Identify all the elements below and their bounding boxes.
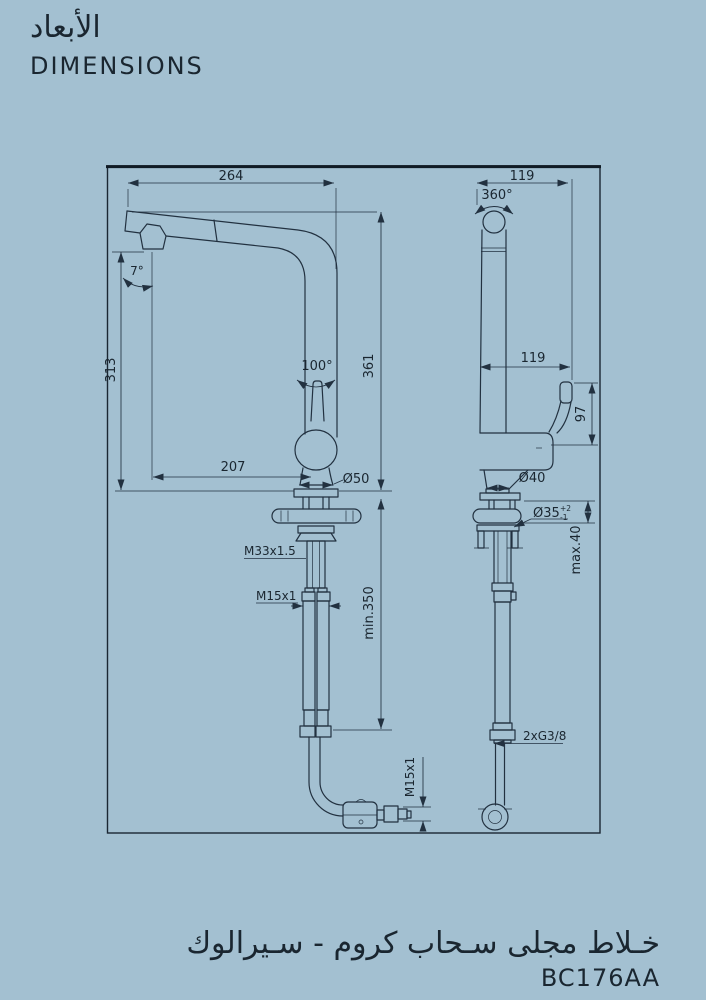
side-deck-plate <box>473 509 521 523</box>
spray-connector-tip <box>407 811 411 818</box>
side-lever-knob <box>560 382 572 403</box>
product-code: BC176AA <box>186 964 660 992</box>
swivel-joint <box>483 211 505 233</box>
front-deck-plate <box>272 509 361 523</box>
label-spout-reach: 264 <box>219 169 244 184</box>
spout-tip <box>125 211 140 233</box>
dim-264-ext <box>128 188 336 269</box>
front-view <box>125 211 411 828</box>
label-spray-hose-thread: M15x1 <box>403 757 417 797</box>
label-swivel-angle: 360° <box>481 188 512 203</box>
hose-ferrule-right <box>317 710 328 726</box>
label-depth-top: 119 <box>510 169 535 184</box>
supply-nut <box>490 730 515 740</box>
hose-loop-outer <box>482 804 508 830</box>
side-base-flange <box>480 493 520 500</box>
hose-end-nut-right <box>316 726 331 737</box>
column-joint-band <box>481 248 506 252</box>
page-footer: خـلاط مجلى سـحاب كروم - سـيرالوك BC176AA <box>186 925 660 993</box>
hose-nut-left <box>302 592 315 601</box>
quick-connector-tab <box>511 592 516 600</box>
label-base-dia-front: Ø50 <box>343 472 370 487</box>
label-hole-tol-minus: -1 <box>560 513 568 522</box>
dim-7-arc <box>123 278 153 287</box>
mounting-nut <box>296 533 336 541</box>
label-supply-thread: 2xG3/8 <box>523 729 566 743</box>
clamp-leg-right <box>512 531 518 548</box>
front-base-flange <box>294 489 338 497</box>
spray-connector-knurl <box>384 806 398 822</box>
side-hose-ferrule <box>493 723 512 730</box>
supply-tail-tube <box>496 743 505 805</box>
spray-connector-collar <box>377 810 384 820</box>
side-shank-through-deck <box>489 500 515 509</box>
label-total-height: 361 <box>362 354 377 379</box>
pullout-spray-head <box>140 224 166 249</box>
shank-channels <box>313 541 320 588</box>
label-hole-tol-plus: +2 <box>560 504 571 513</box>
hose-nut-right <box>317 592 330 601</box>
hose-weight-screw <box>359 820 363 824</box>
hose-ferrule-left <box>304 710 315 726</box>
label-hole-dia: Ø35 <box>533 506 560 521</box>
front-shank-through-deck <box>303 497 329 509</box>
label-handle-height: 97 <box>574 406 589 423</box>
label-spout-tilt: 7° <box>130 264 144 278</box>
threaded-shank <box>307 541 325 588</box>
hose-end-nut-left <box>300 726 315 737</box>
side-braided-hose <box>495 602 510 723</box>
braided-hose-left <box>303 601 315 710</box>
clamp-leg-left <box>478 531 484 548</box>
label-deck-thickness: max.40 <box>569 526 584 575</box>
clamp-bracket <box>477 525 519 531</box>
spray-connector-body <box>398 809 407 819</box>
product-name-arabic: خـلاط مجلى سـحاب كروم - سـيرالوك <box>186 925 660 963</box>
supply-nut-flange <box>494 740 511 743</box>
quick-connector-top <box>492 583 513 591</box>
hose-loop-inner <box>489 811 502 824</box>
spout-seam <box>214 220 217 241</box>
dim-119top-ext <box>477 179 572 380</box>
mounting-collar <box>298 526 334 533</box>
front-body <box>295 430 337 470</box>
label-projection: 207 <box>221 460 246 475</box>
spray-hose-inner <box>320 737 343 805</box>
label-depth-mid: 119 <box>521 351 546 366</box>
braided-hose-right <box>317 601 329 710</box>
dim-313-ext <box>112 252 392 491</box>
label-hose-length: min.350 <box>362 586 377 639</box>
label-handle-angle: 100° <box>301 359 332 374</box>
side-hose-tube-inner <box>498 531 507 583</box>
quick-connector-body <box>494 591 511 602</box>
label-spout-height: 313 <box>104 358 119 383</box>
deck-plate-detail <box>281 511 353 522</box>
side-column <box>480 230 506 433</box>
dim-360-arc <box>475 207 513 215</box>
label-hose-thread: M15x1 <box>256 589 296 603</box>
label-base-dia-side: Ø40 <box>519 471 546 486</box>
side-hose-tube <box>494 531 511 583</box>
side-lever-arm <box>549 401 571 433</box>
dimension-drawing: 264 119 360° 7° 313 100° 361 119 97 207 … <box>0 0 706 1000</box>
dimension-labels: 264 119 360° 7° 313 100° 361 119 97 207 … <box>104 169 589 797</box>
label-shank-thread: M33x1.5 <box>244 544 296 558</box>
side-body <box>480 433 553 470</box>
spout-inner-edge <box>166 236 305 434</box>
